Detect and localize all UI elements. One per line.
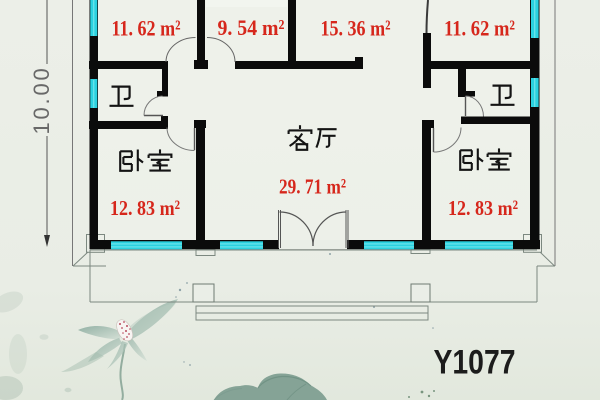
- svg-text:9. 54 m²: 9. 54 m²: [218, 15, 285, 40]
- svg-text:11. 62 m²: 11. 62 m²: [112, 16, 181, 41]
- svg-text:11. 62 m²: 11. 62 m²: [444, 16, 515, 41]
- svg-text:15. 36 m²: 15. 36 m²: [321, 16, 391, 41]
- svg-text:12. 83 m²: 12. 83 m²: [110, 196, 180, 220]
- svg-text:10.00: 10.00: [29, 65, 54, 134]
- svg-text:Y1077: Y1077: [434, 344, 516, 382]
- svg-text:12. 83 m²: 12. 83 m²: [448, 196, 518, 220]
- svg-text:29. 71 m²: 29. 71 m²: [279, 175, 346, 199]
